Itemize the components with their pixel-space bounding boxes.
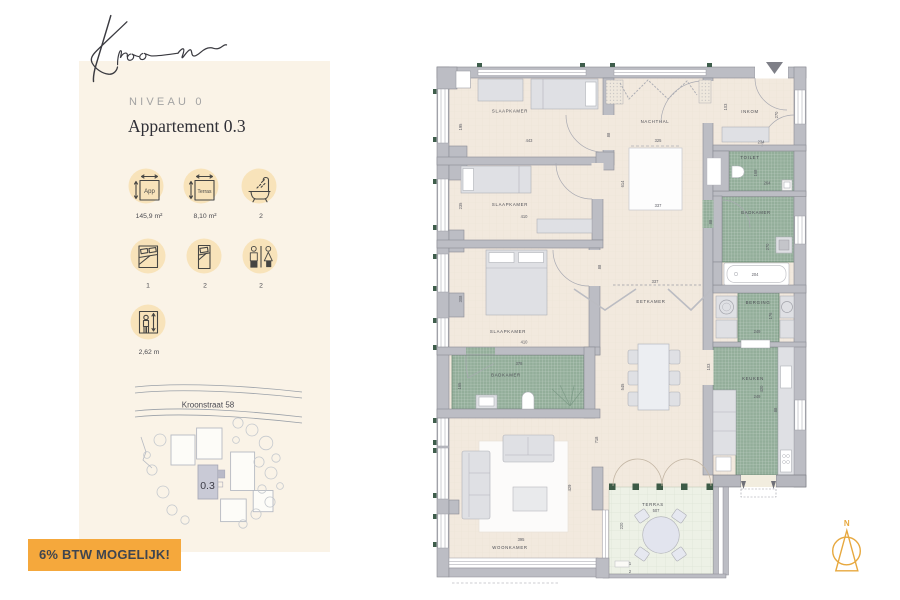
svg-text:507: 507 bbox=[653, 508, 661, 513]
svg-text:220: 220 bbox=[619, 522, 624, 530]
svg-text:103: 103 bbox=[723, 103, 728, 111]
svg-text:443: 443 bbox=[526, 138, 534, 143]
svg-text:TERRAS: TERRAS bbox=[642, 502, 664, 507]
svg-text:718: 718 bbox=[594, 436, 599, 444]
svg-text:264: 264 bbox=[764, 181, 772, 186]
svg-text:249: 249 bbox=[754, 394, 762, 399]
svg-text:337: 337 bbox=[652, 279, 660, 284]
svg-text:BERGING: BERGING bbox=[746, 300, 771, 305]
svg-text:165: 165 bbox=[457, 382, 462, 390]
svg-text:270: 270 bbox=[765, 243, 770, 251]
svg-text:SLAAPKAMER: SLAAPKAMER bbox=[492, 202, 528, 207]
svg-text:249: 249 bbox=[754, 329, 762, 334]
svg-text:88: 88 bbox=[606, 132, 611, 137]
svg-text:614: 614 bbox=[620, 180, 625, 188]
svg-text:337: 337 bbox=[655, 203, 663, 208]
svg-text:395: 395 bbox=[518, 537, 526, 542]
svg-text:168: 168 bbox=[753, 169, 758, 177]
svg-text:204: 204 bbox=[752, 272, 760, 277]
svg-text:88: 88 bbox=[597, 264, 602, 269]
svg-text:429: 429 bbox=[567, 484, 572, 492]
svg-text:378: 378 bbox=[516, 361, 524, 366]
svg-text:BADKAMER: BADKAMER bbox=[741, 210, 771, 215]
svg-text:176: 176 bbox=[768, 312, 773, 320]
svg-text:INKOM: INKOM bbox=[741, 109, 759, 114]
svg-text:WOONKAMER: WOONKAMER bbox=[492, 545, 527, 550]
svg-text:TOILET: TOILET bbox=[740, 155, 759, 160]
svg-text:234: 234 bbox=[758, 140, 766, 145]
svg-text:SLAAPKAMER: SLAAPKAMER bbox=[492, 109, 528, 114]
svg-text:EETKAMER: EETKAMER bbox=[636, 299, 665, 304]
svg-text:103: 103 bbox=[706, 363, 711, 371]
svg-text:410: 410 bbox=[521, 340, 529, 345]
svg-text:88: 88 bbox=[773, 407, 778, 412]
svg-text:545: 545 bbox=[620, 383, 625, 391]
svg-text:410: 410 bbox=[521, 214, 529, 219]
svg-text:KEUKEN: KEUKEN bbox=[742, 376, 764, 381]
svg-text:235: 235 bbox=[458, 202, 463, 210]
svg-text:308: 308 bbox=[458, 295, 463, 303]
svg-text:BADKAMER: BADKAMER bbox=[491, 373, 521, 378]
svg-text:88: 88 bbox=[708, 219, 713, 224]
svg-text:SLAAPKAMER: SLAAPKAMER bbox=[490, 329, 526, 334]
svg-text:NACHTHAL: NACHTHAL bbox=[641, 119, 670, 124]
svg-text:195: 195 bbox=[458, 123, 463, 131]
svg-text:420: 420 bbox=[759, 385, 764, 393]
svg-text:270: 270 bbox=[774, 111, 779, 119]
svg-text:N: N bbox=[844, 519, 850, 528]
svg-text:325: 325 bbox=[655, 138, 663, 143]
